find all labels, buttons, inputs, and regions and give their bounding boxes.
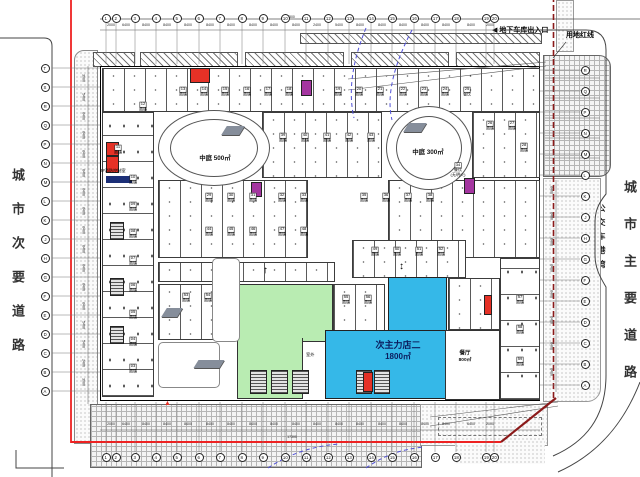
dimension-text: 8400 [142,23,150,27]
dimension-text: 8400 [81,302,85,310]
dimension-text: 5400 [81,93,85,101]
shop-label: 20商铺 [355,87,363,97]
shop-label: 47商铺 [278,227,286,237]
dimension-text: 8400 [356,422,364,426]
shop-label: 58商铺 [516,325,524,335]
grid-bubble: 5 [173,14,182,23]
grid-bubble: G [581,255,590,264]
dimension-text: 8400 [163,23,171,27]
dimension-text: 2000 [107,422,115,426]
grid-bubble: M [581,150,590,159]
grid-bubble: 18 [452,14,461,23]
grid-bubble: 14 [367,453,376,462]
dimension-text: 8400 [81,207,85,215]
shop-label: 04商铺 [129,337,137,347]
grid-bubble: G [41,273,50,282]
dimension-text: 8400 [81,226,85,234]
dimension-text: 8400 [378,23,386,27]
grid-bubble: B [41,368,50,377]
shop-label: 43商铺 [367,133,375,143]
grid-bubble: F [41,292,50,301]
grid-bubble: 5 [173,453,182,462]
grid-bubble: 16 [410,453,419,462]
grid-bubble: 9 [259,14,268,23]
dimension-text: 8400 [163,422,171,426]
dimension-text: 8400 [270,422,278,426]
grid-bubble: S [41,83,50,92]
shop-label: 38商铺 [426,193,434,203]
dimension-text: 8400 [549,264,553,272]
grid-bubble: H [41,254,50,263]
shop-label: 21商铺 [376,87,384,97]
dimension-text: 8400 [184,23,192,27]
grid-bubble: K [41,216,50,225]
dimension-text: 8400 [549,290,553,298]
dimension-text: 2400 [313,23,321,27]
dimension-text: 6400 [467,422,475,426]
grid-bubble: 9 [259,453,268,462]
dimension-text: 8400 [313,422,321,426]
grid-bubble: N [41,159,50,168]
shop-label: 09商铺 [129,202,137,212]
grid-bubble: Q [581,87,590,96]
grid-bubble: 13 [345,14,354,23]
dimension-text: 2000 [486,422,494,426]
dimension-text: 6400 [122,23,130,27]
grid-bubble: 15 [388,453,397,462]
shop-label: 52商铺 [437,247,445,257]
grid-bubble: 4 [152,14,161,23]
shop-label: 11商铺 [114,145,122,155]
grid-bubble: 20 [490,453,499,462]
dimension-text: 8400 [81,169,85,177]
grid-bubble: 10 [281,453,290,462]
shop-label: 31商铺 [249,193,257,203]
shop-label: 06商铺 [129,283,137,293]
grid-bubble: R [581,66,590,75]
grid-bubble: A [41,387,50,396]
dimension-text: 8400 [549,238,553,246]
dimension-text: 8400 [249,422,257,426]
dimension-text: 8400 [227,422,235,426]
shop-label: 13商铺 [179,87,187,97]
grid-bubble: T [41,64,50,73]
dimension-text: 8400 [549,342,553,350]
grid-bubble: C [41,349,50,358]
shop-label: 05商铺 [129,310,137,320]
grid-bubble: 12 [324,453,333,462]
shop-label: 25餐饮 [463,87,471,97]
grid-bubble: 17 [431,453,440,462]
dimension-text: 8400 [442,422,450,426]
dimension-text: 8400 [378,422,386,426]
shop-label: 26商铺 [486,121,494,131]
grid-bubble: E [581,297,590,306]
grid-bubble: H [581,234,590,243]
dimension-text: 8400 [442,23,450,27]
grid-bubble: 1 [102,453,111,462]
dimension-text: 8400 [184,422,192,426]
shop-label: 22商铺 [399,87,407,97]
shop-label: 41商铺 [323,133,331,143]
dimension-text: 8400 [81,264,85,272]
dimension-text: 8400 [421,23,429,27]
dimension-text: 2000 [107,23,115,27]
shop-label: 50商铺 [393,247,401,257]
shop-label: 56商铺 [364,295,372,305]
shop-label: 03商铺 [129,364,137,374]
shop-label: 19商铺 [334,87,342,97]
dimension-text: 8400 [549,212,553,220]
grid-bubble: 6 [195,14,204,23]
grid-bubble: 6 [195,453,204,462]
dimension-text: 5400 [81,321,85,329]
shop-label: 34餐饮(无明火) [451,162,466,177]
dimension-text: 8400 [81,131,85,139]
dimension-text: 8400 [356,23,364,27]
grid-bubble: 8 [238,14,247,23]
grid-bubble: 8 [238,453,247,462]
grid-bubble: 12 [324,14,333,23]
dimension-text: 8400 [549,186,553,194]
shop-label: 35商铺 [360,193,368,203]
grid-bubble: 17 [431,14,440,23]
shop-label: 59商铺 [516,357,524,367]
grid-bubble: F [581,276,590,285]
dimension-text: 8400 [292,23,300,27]
grid-bubble: R [41,102,50,111]
shop-label: 53商铺 [182,293,190,303]
shop-label: 42商铺 [345,133,353,143]
grid-bubble: 2 [112,14,121,23]
dimension-text: 8400 [467,23,475,27]
grid-bubble: 14 [367,14,376,23]
shop-label: 30商铺 [227,193,235,203]
grid-bubble: 13 [345,453,354,462]
dimension-text: 3900 [81,74,85,82]
grid-bubble: 1 [102,14,111,23]
grid-bubble: C [581,339,590,348]
grid-bubble: 11 [302,453,311,462]
shop-label: 46商铺 [249,227,257,237]
shop-label: 29商铺 [205,193,213,203]
grid-bubble: 16 [410,14,419,23]
grid-bubble: D [581,318,590,327]
shop-label: 14商铺 [200,87,208,97]
shop-label: 55商铺 [342,295,350,305]
shop-label: 24商铺 [441,87,449,97]
grid-bubble: 3 [131,14,140,23]
dimension-text: 8400 [249,23,257,27]
dimension-text: 8400 [142,422,150,426]
shop-label: 16商铺 [243,87,251,97]
grid-bubble: P [41,140,50,149]
shop-label: 10商铺 [129,175,137,185]
shop-label: 57商铺 [516,295,524,305]
shop-label: 48商铺 [300,227,308,237]
dimension-text: 8400 [227,23,235,27]
dimension-text: 5400 [335,23,343,27]
grid-bubble: 7 [216,453,225,462]
grid-bubble: K [581,192,590,201]
grid-bubble: Q [41,121,50,130]
shop-label: 07商铺 [129,256,137,266]
dimension-text: 5400 [81,340,85,348]
grid-bubble: 2 [112,453,121,462]
dimension-text: 8400 [421,422,429,426]
shop-label: 23商铺 [420,87,428,97]
shop-label: 54商铺 [204,293,212,303]
shop-label: 08商铺 [129,229,137,239]
grid-bubble: 4 [152,453,161,462]
grid-bubble: 18 [452,453,461,462]
dimension-text: 6400 [122,422,130,426]
shop-label: 40商铺 [301,133,309,143]
dimension-text: 8400 [292,422,300,426]
shop-label: 49商铺 [371,247,379,257]
grid-bubble: P [581,108,590,117]
dimension-text: 8400 [81,283,85,291]
grid-bubble: 10 [281,14,290,23]
grid-bubble: J [581,213,590,222]
grid-bubble: D [41,330,50,339]
dimension-text: 8400 [399,23,407,27]
grid-bubble: J [41,235,50,244]
shop-label: 28商铺 [520,143,528,153]
grid-bubble: N [581,129,590,138]
site-plan-canvas: 城市次要道路 城市主要道路 公交车港湾 中庭 500㎡ 中庭 300㎡ [0,0,640,477]
shop-label: 51商铺 [415,247,423,257]
grid-bubble: 7 [216,14,225,23]
grid-bubble: 11 [302,14,311,23]
dimension-text: 8400 [81,150,85,158]
dimension-text: 2400 [81,359,85,367]
dimension-text: 3900 [81,378,85,386]
shop-label: 32商铺 [278,193,286,203]
grid-bubble: L [41,197,50,206]
grid-bubble: 20 [490,14,499,23]
dimension-text: 8400 [549,368,553,376]
dimension-text: 2000 [486,23,494,27]
dimension-text: 8400 [81,188,85,196]
shop-label: 33商铺 [300,193,308,203]
shop-label: 18商铺 [285,87,293,97]
grid-bubble: L [581,171,590,180]
grid-bubble: B [581,360,590,369]
grid-bubble: M [41,178,50,187]
shop-label: 12商铺 [139,102,147,112]
dimension-text: 8400 [81,112,85,120]
shop-label: 36商铺 [382,193,390,203]
shop-label: 44商铺 [205,227,213,237]
grid-bubble: A [581,381,590,390]
shop-label: 27商铺 [508,121,516,131]
dimension-text: 8400 [270,23,278,27]
grid-bubble: 3 [131,453,140,462]
dimension-text: 8400 [399,422,407,426]
shop-label: 15商铺 [221,87,229,97]
dimension-text: 8400 [206,23,214,27]
dimension-text: 8400 [335,422,343,426]
dimension-text: 8400 [206,422,214,426]
shop-label: 17商铺 [264,87,272,97]
grid-bubble: 15 [388,14,397,23]
dimension-text: 8400 [81,245,85,253]
grid-bubble: E [41,311,50,320]
shop-label: 39商铺 [279,133,287,143]
shop-label: 45商铺 [227,227,235,237]
shop-label: 37商铺 [404,193,412,203]
dimension-text: 8400 [549,316,553,324]
